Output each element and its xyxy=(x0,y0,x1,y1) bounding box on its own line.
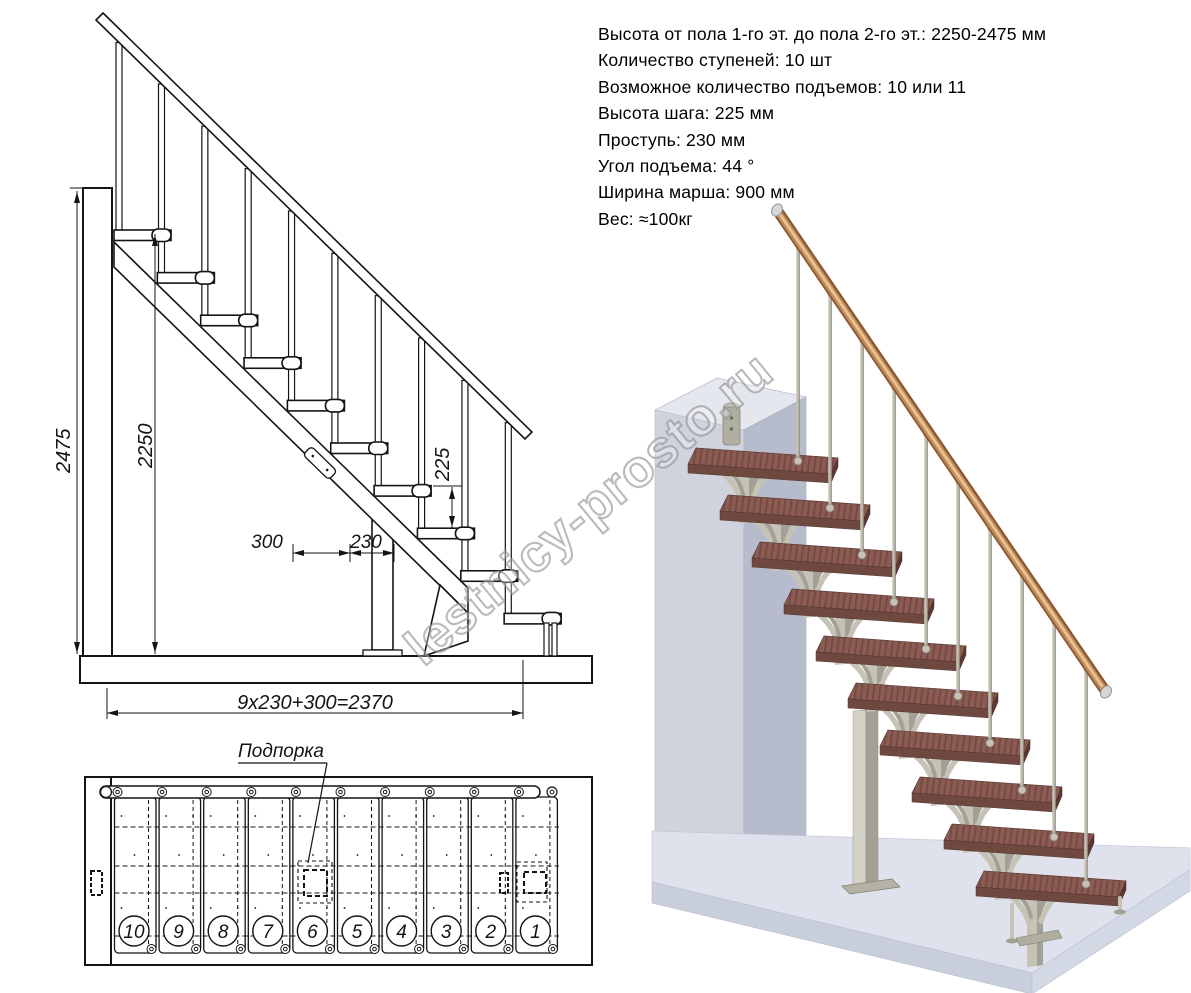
plan-rail-end-cap xyxy=(101,787,112,798)
dim-arrow xyxy=(512,710,523,716)
baluster-ball-joint xyxy=(794,457,802,465)
fastener-dot xyxy=(460,907,462,909)
baluster-ball-joint xyxy=(922,645,930,653)
screw-icon xyxy=(325,945,334,954)
fastener-dot xyxy=(312,854,314,856)
bottom-step-leg xyxy=(552,623,557,656)
step-number-label: 7 xyxy=(263,922,275,943)
support-post-3d xyxy=(853,710,866,889)
fastener-dot xyxy=(237,815,239,817)
step-bullnose xyxy=(282,357,301,370)
spec-line: Ширина марша: 900 мм xyxy=(598,179,1046,205)
fastener-dot xyxy=(326,907,328,909)
spec-line: Возможное количество подъемов: 10 или 11 xyxy=(598,74,1046,100)
screw-icon xyxy=(459,945,468,954)
support-post-base xyxy=(363,650,402,656)
baluster-side xyxy=(202,126,208,315)
step-bullnose xyxy=(455,527,474,540)
rail-baluster-icon xyxy=(247,788,256,797)
fastener-dot xyxy=(415,815,417,817)
spec-line: Проступь: 230 мм xyxy=(598,127,1046,153)
spec-line: Высота шага: 225 мм xyxy=(598,100,1046,126)
baluster-ball-joint xyxy=(1082,880,1090,888)
dim-depth-label: 300 xyxy=(251,532,283,553)
rail-baluster-icon xyxy=(336,788,345,797)
baluster-side xyxy=(245,169,251,358)
dim-total-run-label: 9x230+300=2370 xyxy=(237,692,393,714)
fastener-dot xyxy=(371,815,373,817)
baluster-side xyxy=(462,380,468,570)
dim-riser-label: 225 xyxy=(432,447,454,482)
dim-stair-height-label: 2250 xyxy=(135,424,157,470)
support-label: Подпорка xyxy=(238,741,324,762)
baluster-side xyxy=(159,84,165,273)
fastener-dot xyxy=(401,854,403,856)
fastener-dot xyxy=(388,815,390,817)
fastener-dot xyxy=(460,815,462,817)
mount-plan xyxy=(524,872,546,893)
baluster-ball-joint xyxy=(858,551,866,559)
spec-line: Высота от пола 1-го эт. до пола 2-го эт.… xyxy=(598,21,1046,47)
dim-arrow xyxy=(449,516,455,527)
fastener-dot xyxy=(433,815,435,817)
fastener-dot xyxy=(522,815,524,817)
baluster-side xyxy=(332,253,338,443)
baluster-side xyxy=(375,296,381,486)
screw-icon xyxy=(281,945,290,954)
fastener-dot xyxy=(165,815,167,817)
spec-line: Угол подъема: 44 ° xyxy=(598,153,1046,179)
dim-total-height-label: 2475 xyxy=(53,428,75,474)
leg-foot xyxy=(1114,910,1126,915)
step-bullnose xyxy=(369,442,388,455)
dim-arrow xyxy=(74,642,80,653)
fastener-dot xyxy=(504,907,506,909)
rail-baluster-icon xyxy=(202,788,211,797)
step-bullnose xyxy=(412,485,431,498)
rail-baluster-icon xyxy=(425,788,434,797)
screw-icon xyxy=(504,945,513,954)
fastener-dot xyxy=(254,815,256,817)
fastener-dot xyxy=(267,854,269,856)
baluster-ball-joint xyxy=(890,598,898,606)
rail-baluster-icon xyxy=(381,788,390,797)
wall-mount-plan xyxy=(91,871,102,895)
support-post-plan xyxy=(304,870,327,896)
fastener-dot xyxy=(415,907,417,909)
plan-view-drawing: 10987654321 Подпорка xyxy=(85,741,592,965)
step-number-label: 6 xyxy=(307,922,318,943)
plan-steps-group: 10987654321 xyxy=(115,797,560,954)
fastener-dot xyxy=(148,907,150,909)
fastener-dot xyxy=(477,907,479,909)
fastener-dot xyxy=(299,815,301,817)
rail-baluster-icon xyxy=(158,788,167,797)
screw-icon xyxy=(147,945,156,954)
dim-arrow xyxy=(152,642,158,653)
baluster-side xyxy=(289,211,295,400)
screw-icon xyxy=(370,945,379,954)
fastener-dot xyxy=(344,815,346,817)
step-bullnose xyxy=(325,399,344,412)
fastener-dot xyxy=(344,907,346,909)
step-number-label: 2 xyxy=(485,922,497,943)
baluster-side xyxy=(116,43,122,231)
baluster-ball-joint xyxy=(1018,786,1026,794)
fastener-dot xyxy=(210,907,212,909)
fastener-dot xyxy=(549,815,551,817)
fastener-dot xyxy=(357,854,359,856)
fastener-dot xyxy=(504,815,506,817)
fastener-dot xyxy=(165,907,167,909)
mount-hidden-outline xyxy=(517,862,547,902)
fastener-dot xyxy=(223,854,225,856)
screw-icon xyxy=(236,945,245,954)
step-number-label: 9 xyxy=(173,922,184,943)
fastener-dot xyxy=(388,907,390,909)
baluster-ball-joint xyxy=(954,692,962,700)
dim-arrow xyxy=(74,192,80,203)
screw-icon xyxy=(548,945,557,954)
render-3d xyxy=(652,202,1190,993)
step-number-label: 1 xyxy=(530,922,541,943)
side-steps-group xyxy=(114,43,561,625)
baluster-ball-joint xyxy=(986,739,994,747)
mount-plan-small xyxy=(500,873,508,893)
fastener-dot xyxy=(433,907,435,909)
fastener-dot xyxy=(299,907,301,909)
fastener-dot xyxy=(237,907,239,909)
fastener-dot xyxy=(371,907,373,909)
fastener-dot xyxy=(254,907,256,909)
drawing-canvas: 2475 2250 225 300 230 9x230+300=2370 109… xyxy=(0,0,1191,993)
fastener-dot xyxy=(134,854,136,856)
step-bullnose xyxy=(195,272,214,285)
baluster-side xyxy=(419,338,425,528)
fastener-dot xyxy=(490,854,492,856)
fastener-dot xyxy=(477,815,479,817)
fastener-dot xyxy=(192,815,194,817)
newel-screw-icon xyxy=(547,787,557,797)
leg-foot xyxy=(1006,939,1018,944)
side-elevation-drawing: 2475 2250 225 300 230 9x230+300=2370 xyxy=(53,13,592,719)
fastener-dot xyxy=(178,854,180,856)
fastener-dot xyxy=(121,907,123,909)
spec-list: Высота от пола 1-го эт. до пола 2-го эт.… xyxy=(598,21,1046,232)
wall-column xyxy=(83,188,112,656)
dim-arrow xyxy=(107,710,118,716)
fastener-dot xyxy=(522,907,524,909)
fastener-dot xyxy=(148,815,150,817)
rail-baluster-icon xyxy=(514,788,523,797)
floor-band xyxy=(80,656,592,683)
fastener-dot xyxy=(192,907,194,909)
rail-baluster-icon xyxy=(291,788,300,797)
dim-arrow xyxy=(293,550,304,556)
baluster-ball-joint xyxy=(1050,833,1058,841)
dim-run-label: 230 xyxy=(349,532,382,553)
step-number-label: 10 xyxy=(123,922,145,943)
step-bullnose xyxy=(239,314,258,327)
step-number-label: 5 xyxy=(352,922,363,943)
baluster-ball-joint xyxy=(826,504,834,512)
fastener-dot xyxy=(326,815,328,817)
dim-arrow xyxy=(339,550,350,556)
spec-line: Количество ступеней: 10 шт xyxy=(598,47,1046,73)
fastener-dot xyxy=(281,815,283,817)
rail-baluster-icon xyxy=(470,788,479,797)
fastener-dot xyxy=(281,907,283,909)
step-number-label: 8 xyxy=(218,922,229,943)
fastener-dot xyxy=(121,815,123,817)
screw-icon xyxy=(415,945,424,954)
fastener-dot xyxy=(210,815,212,817)
spec-line: Вес: ≈100кг xyxy=(598,206,1046,232)
fastener-dot xyxy=(535,854,537,856)
screw-icon xyxy=(192,945,201,954)
fastener-dot xyxy=(446,854,448,856)
step-number-label: 3 xyxy=(441,922,452,943)
fastener-dot xyxy=(549,907,551,909)
bottom-step-leg xyxy=(544,623,549,656)
support-post-3d xyxy=(866,708,878,887)
step-number-label: 4 xyxy=(396,922,407,943)
dim-arrow xyxy=(449,488,455,499)
rail-baluster-icon xyxy=(113,788,122,797)
